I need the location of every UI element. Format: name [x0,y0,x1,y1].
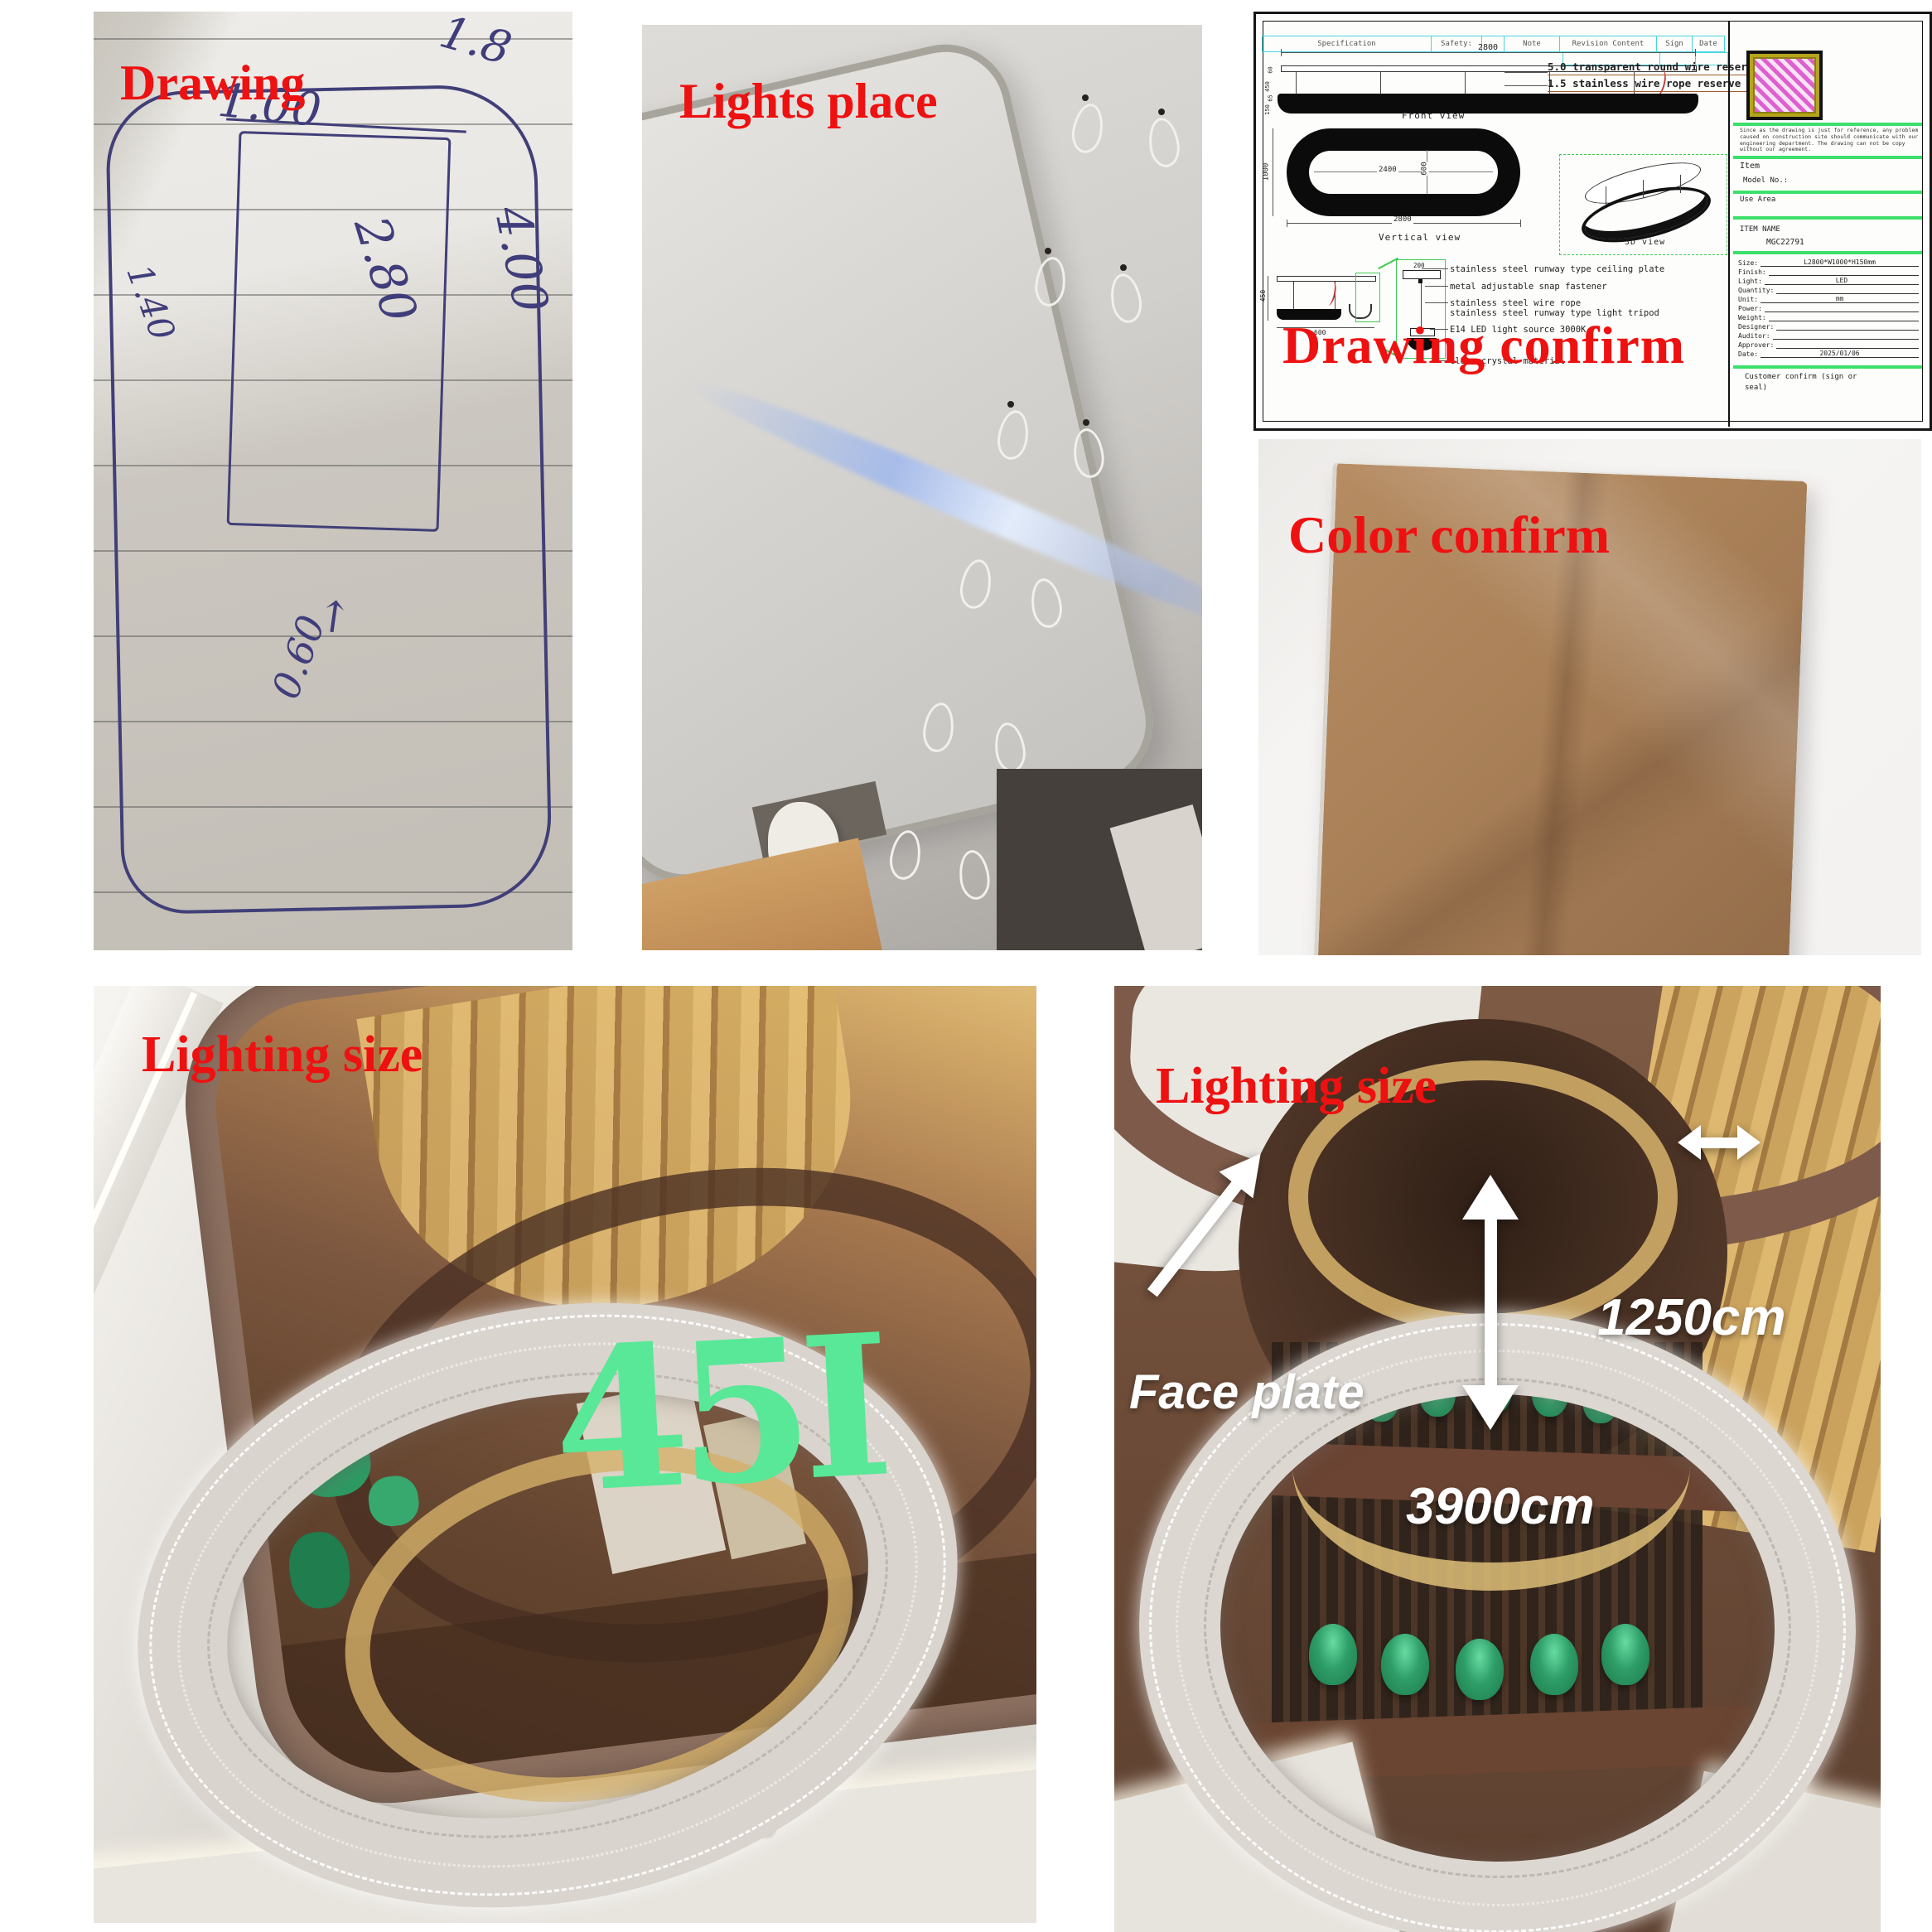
field-label: Size: [1738,259,1758,267]
detail-dim-drop: 450 [1260,290,1267,302]
field-value: mm [1761,295,1919,303]
field-label: Date: [1738,350,1758,358]
field-label: Auditor: [1738,332,1770,340]
item-label: Item [1740,162,1760,171]
field-label: Power: [1738,305,1762,312]
wire-anchor-dot [1082,94,1089,101]
field-label: Quantity: [1738,287,1774,294]
vertical-dim-outer-width: 2800 [1392,216,1413,224]
brand-logo [1746,51,1823,120]
collage-canvas: 1.8 1.00 2.80 4.00 1.40 0.60 ↑ Drawing [0,0,1932,1932]
front-view-dim-h2: 450 [1265,81,1271,92]
drawing-label: Drawing [120,58,305,108]
callout-snap-fastener: metal adjustable snap fastener [1450,283,1607,292]
lights-place-photo: Lights place [642,25,1202,950]
wire-loop-icon [1107,271,1145,325]
front-view-dim-h4: 150 [1265,104,1271,115]
lighting-size-right-label: Lighting size [1156,1060,1437,1112]
up-arrow-icon: ↑ [313,594,355,642]
header-sign: Sign [1656,36,1693,52]
detail-zoom-source-box [1355,273,1380,322]
wire-loop-icon [956,848,992,901]
horizontal-double-arrow-icon [1678,1125,1761,1160]
field-value [1776,293,1919,294]
vertical-dim-inner-width: 2400 [1377,167,1398,174]
header-note: Note [1504,36,1560,52]
vertical-view-caption: Vertical view [1379,233,1461,242]
wire-anchor-dot [1045,248,1051,254]
field-value: L2800*W1000*H150mm [1761,258,1919,267]
wire-loop-icon [1146,116,1182,169]
vertical-dim-inner-height: 600 [1422,162,1429,175]
header-revision-content: Revision Content [1559,36,1657,52]
sketch-inner-rect [227,131,452,532]
field-value [1769,275,1919,276]
wire-anchor-dot [1007,401,1014,408]
lighting-size-photo-left: 45I Lighting size [94,986,1036,1923]
field-label: Approver: [1738,341,1774,349]
vertical-view-ring [1287,128,1520,216]
wire-anchor-dot [1158,109,1165,115]
header-specification: Specification [1262,36,1432,52]
detail-ceiling-plate [1403,270,1441,279]
field-value [1769,321,1919,321]
field-value: 2025/01/06 [1761,350,1919,358]
field-label: Finish: [1738,268,1766,276]
green-annotation: 45I [548,1309,886,1520]
color-confirm-photo: Color confirm [1258,439,1921,955]
field-label: Unit: [1738,296,1758,303]
width-value-label: 1250cm [1597,1292,1786,1344]
spec-fields: Size:L2800*W1000*H150mm Finish: Light:LE… [1738,258,1919,358]
front-view-caption: Front view [1402,111,1465,120]
height-value-label: 3900cm [1406,1481,1595,1533]
header-date: Date [1692,36,1725,52]
lighting-size-photo-right: Face plate 3900cm 1250cm Lighting size [1114,986,1881,1932]
wire-anchor-dot [1120,264,1127,271]
field-label: Light: [1738,278,1762,285]
vertical-double-arrow-icon [1462,1175,1519,1430]
lighting-size-left-label: Lighting size [142,1029,423,1080]
color-confirm-label: Color confirm [1288,509,1610,562]
item-name-label: ITEM NAME [1740,226,1780,234]
use-area-label: Use Area [1740,196,1775,204]
callout-wire-rope: stainless steel wire rope [1450,299,1581,308]
lights-place-label: Lights place [679,76,938,126]
callout-ceiling-plate: stainless steel runway type ceiling plat… [1450,265,1664,274]
header-safety: Safety: [1431,36,1482,52]
customer-confirm-note: Customer confirm (sign or seal) [1745,372,1877,393]
drawing-confirm-sheet: Specification Safety: Note Revision Cont… [1253,12,1932,431]
item-name-value: MGC22791 [1766,239,1804,247]
drawing-confirm-label: Drawing confirm [1282,319,1685,372]
front-view-dim-width: 2800 [1478,44,1498,52]
wire-loop-icon [887,828,925,882]
field-value [1776,348,1919,349]
field-value: LED [1765,277,1919,285]
front-view-dim-h3: 65 [1268,94,1274,101]
field-value [1776,330,1919,331]
drawing-sketch-photo: 1.8 1.00 2.80 4.00 1.40 0.60 ↑ Drawing [94,12,572,950]
field-value [1765,312,1919,312]
disclaimer-text: Since as the drawing is just for referen… [1740,128,1919,154]
model-label: Model No.: [1743,177,1788,185]
face-plate-label: Face plate [1129,1369,1364,1417]
vertical-dim-outer-height: 1000 [1263,163,1270,181]
field-label: Designer: [1738,323,1774,331]
field-label: Weight: [1738,314,1766,321]
wire-loop-icon [1069,101,1107,155]
wire-anchor-dot [1083,419,1089,426]
field-value [1773,339,1919,340]
3d-view-box: 3D view [1559,154,1727,255]
front-view-dim-h1: 60 [1268,66,1274,73]
front-view-ring-bar [1278,94,1698,114]
3d-view-caption: 3D view [1625,239,1665,247]
